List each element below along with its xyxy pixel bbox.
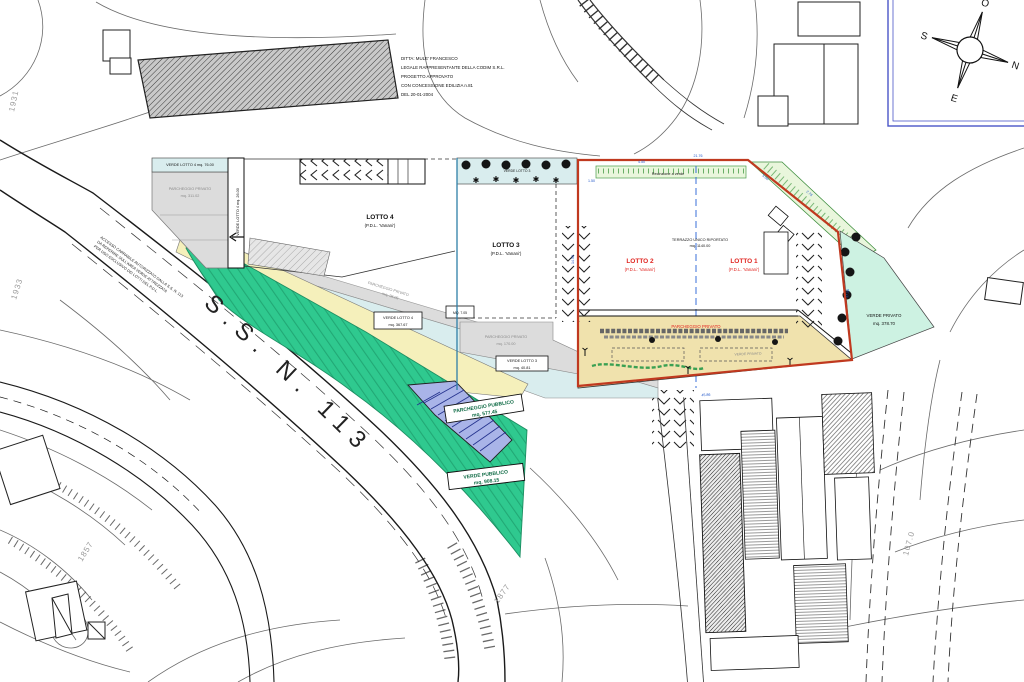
project-note-line: LEGALE RAPPRESENTANTE DELLA CODIM S.R.L. [401, 65, 505, 70]
verde-lotto3-box-label1: VERDE LOTTO 3 [507, 359, 537, 363]
project-note-line: CON CONCESSIONE EDILIZIA n.81 [401, 83, 474, 88]
terrace-note: TERRAZZO UNICO RIPORTATO [672, 238, 728, 242]
dim-label: 21.76 [694, 154, 703, 158]
lotto4-area [244, 159, 457, 277]
dim-label: 14.50 [571, 255, 575, 264]
lotto1-sub: (P.D.L. 'Vanani') [729, 267, 760, 272]
parcheggio-lotti-label: PARCHEGGIO PRIVATO [671, 324, 721, 329]
verde-privato-label1: VERDE PRIVATO [867, 313, 902, 318]
site-plan-page: ✱✱ ✱✱ ✱ [0, 0, 1024, 682]
building-hatched-nw [103, 30, 398, 118]
dim-label: 4.50 [638, 160, 645, 164]
project-note-line: PROGETTO APPROVATO [401, 74, 454, 79]
parcel-1931: 1931 [7, 89, 20, 112]
lotto4-sub: (P.D.L. 'Vanani') [365, 223, 396, 228]
lotto3-sub: (P.D.L. 'Vanani') [491, 251, 522, 256]
lotto4-title: LOTTO 4 [366, 214, 394, 221]
dim-label: 45.86 [701, 393, 710, 398]
svg-text:✱: ✱ [493, 175, 500, 184]
verde-lotto3-box-label2: mq. 40.81 [514, 366, 531, 370]
svg-text:✱: ✱ [553, 176, 560, 185]
buildings-sw [0, 435, 105, 641]
mq-box-label: MQ. 7.05 [453, 311, 467, 315]
verde-lotto4-box-label1: VERDE LOTTO 4 [383, 316, 413, 320]
project-note-line: DEL 20-01-2004 [401, 92, 434, 97]
verde-lotto4-top-label: VERDE LOTTO 4 mq. 76.00 [166, 163, 214, 167]
parcheggio-nw-label1: PARCHEGGIO PRIVATO [169, 187, 212, 191]
compass-west: O [980, 0, 991, 10]
parcheggio-nw-label2: mq. 311.02 [181, 194, 200, 198]
dim-label: 1.50 [588, 179, 595, 183]
compass-south: S [919, 30, 929, 43]
parcheggio-l3-label2: mq. 170.00 [497, 342, 516, 346]
parcheggio-l3-label1: PARCHEGGIO PRIVATO [485, 335, 528, 339]
lotto1-title: LOTTO 1 [730, 258, 758, 265]
lotto2-sub: (P.D.L. 'Vanani') [625, 267, 656, 272]
verde-lotto4-box-label2: mq. 367.67 [389, 323, 408, 327]
site-plan-canvas: ✱✱ ✱✱ ✱ [0, 0, 1024, 682]
parcel-1857: 1857 [76, 540, 95, 563]
compass-north: N [1010, 60, 1020, 73]
parcel-1933: 1933 [9, 277, 24, 301]
elevation-107: 107.0 [901, 530, 916, 557]
compass-rose: O E S N [888, 0, 1024, 126]
svg-text:✱: ✱ [473, 176, 480, 185]
project-note: DITTA: MULE' FRANCESCO LEGALE RAPPRESENT… [401, 56, 505, 97]
verde-lotto4-side-label: VERDE LOTTO 4 mq. 26.00 [236, 188, 240, 236]
lotto2-title: LOTTO 2 [626, 258, 654, 265]
terrace-area: mq. 1140.00 [690, 244, 711, 248]
lotto3-title: LOTTO 3 [492, 242, 520, 249]
verde-lotto3-strip-label: VERDE LOTTO 3 [504, 169, 531, 173]
verde-privato-label2: mq. 378.70 [873, 321, 896, 326]
lotto4-west-annex [152, 158, 244, 268]
svg-text:✱: ✱ [513, 176, 520, 185]
recinzione-label: Recinzione a verde [652, 172, 685, 176]
project-note-line: DITTA: MULE' FRANCESCO [401, 56, 458, 61]
dashed-paths-right [866, 390, 977, 682]
compass-east: E [949, 93, 959, 106]
road-access-note: ACCESSO CARRABILE AUTORIZZATO DALLA S.S.… [93, 236, 184, 308]
svg-text:✱: ✱ [533, 175, 540, 184]
road-note-line: ACCESSO CARRABILE AUTORIZZATO DALLA S.S.… [99, 236, 183, 299]
